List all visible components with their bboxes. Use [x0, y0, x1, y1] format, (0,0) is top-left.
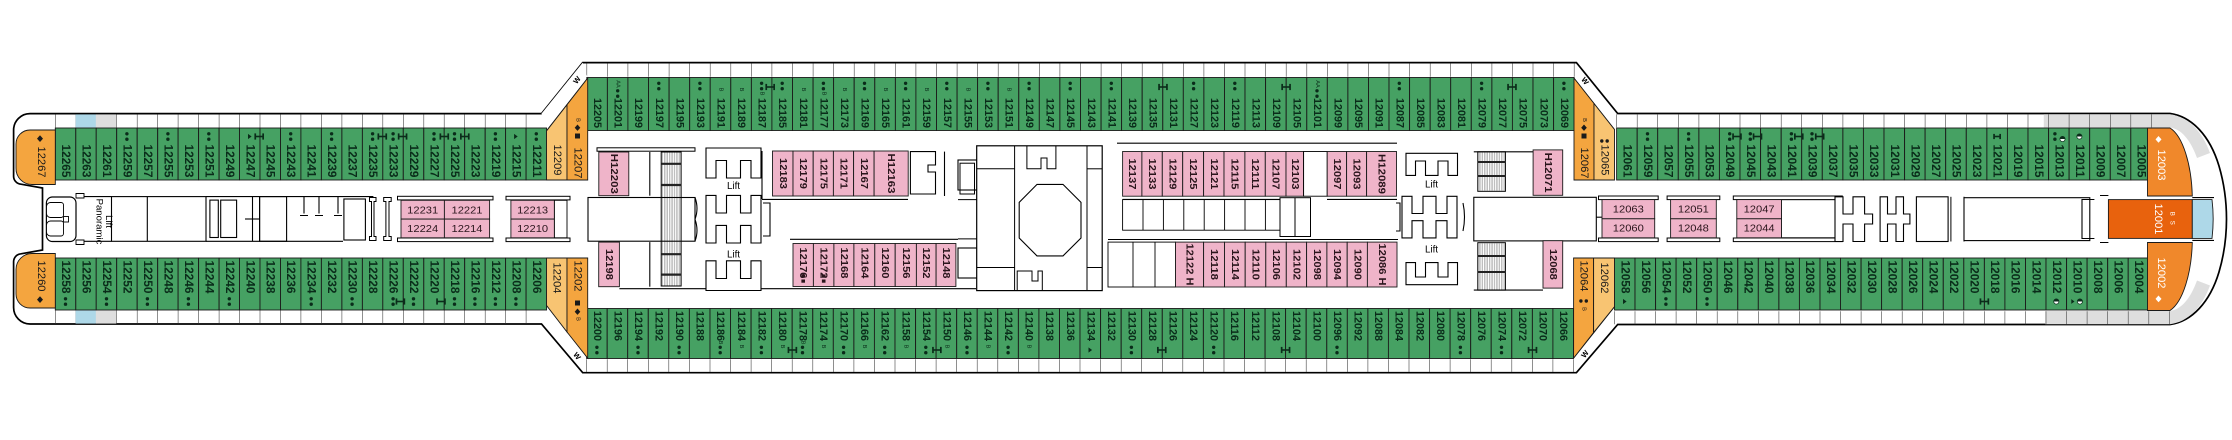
svg-text:B: B	[738, 88, 744, 92]
svg-text:12256: 12256	[80, 261, 93, 295]
svg-text:12134: 12134	[1084, 311, 1096, 342]
svg-text:12151: 12151	[1003, 98, 1015, 128]
svg-text:12261: 12261	[100, 145, 113, 179]
svg-text:12259: 12259	[120, 145, 133, 179]
svg-text:12216: 12216	[468, 261, 481, 295]
svg-text:12157: 12157	[941, 98, 953, 128]
svg-text:12077: 12077	[1496, 98, 1508, 128]
svg-text:12156: 12156	[900, 248, 912, 279]
svg-text:12064: 12064	[1578, 261, 1590, 292]
svg-text:12116: 12116	[1228, 311, 1240, 341]
svg-text:12069: 12069	[1558, 98, 1570, 128]
svg-text:12097: 12097	[1331, 159, 1343, 190]
svg-text:12249: 12249	[223, 145, 236, 179]
svg-text:B: B	[882, 88, 888, 92]
svg-text:12146: 12146	[961, 311, 973, 341]
svg-text:12232: 12232	[325, 261, 338, 294]
svg-text:12021: 12021	[1991, 145, 2004, 179]
svg-text:12193: 12193	[694, 98, 706, 128]
svg-text:12184: 12184	[735, 311, 747, 342]
svg-text:12022: 12022	[1947, 261, 1960, 294]
svg-text:12100: 12100	[1311, 311, 1323, 341]
svg-text:12031: 12031	[1888, 145, 1901, 179]
svg-text:12235: 12235	[366, 145, 379, 179]
svg-text:12099: 12099	[1332, 98, 1344, 128]
svg-text:12201: 12201	[612, 98, 624, 128]
svg-text:12169: 12169	[859, 98, 871, 128]
svg-text:12143: 12143	[1085, 98, 1097, 128]
svg-text:12112: 12112	[1249, 311, 1261, 341]
svg-text:12073: 12073	[1537, 98, 1549, 128]
svg-text:B: B	[717, 341, 723, 345]
svg-text:12111: 12111	[1249, 159, 1261, 190]
svg-text:12039: 12039	[1806, 145, 1819, 179]
svg-text:12088: 12088	[1372, 311, 1384, 341]
svg-text:12067: 12067	[1578, 148, 1590, 179]
svg-text:12042: 12042	[1742, 261, 1755, 294]
svg-text:12162: 12162	[879, 311, 891, 341]
svg-text:12079: 12079	[1476, 98, 1488, 128]
svg-text:B: B	[575, 317, 581, 321]
svg-text:12205: 12205	[591, 98, 603, 128]
svg-text:12187: 12187	[756, 98, 768, 128]
svg-text:12106: 12106	[1270, 249, 1282, 280]
svg-text:12192: 12192	[653, 311, 665, 341]
svg-text:12074: 12074	[1496, 311, 1508, 342]
svg-text:12171: 12171	[838, 158, 850, 189]
svg-text:12109: 12109	[1270, 98, 1282, 128]
svg-text:12211: 12211	[530, 145, 543, 179]
svg-text:12236: 12236	[284, 261, 297, 295]
svg-text:12212: 12212	[489, 260, 502, 293]
svg-text:12008: 12008	[2091, 261, 2104, 295]
svg-text:12222: 12222	[407, 261, 420, 294]
svg-text:12237: 12237	[346, 145, 359, 178]
svg-text:12059: 12059	[1641, 145, 1654, 179]
svg-text:12123: 12123	[1208, 98, 1220, 128]
svg-text:12175: 12175	[817, 158, 829, 189]
svg-text:12028: 12028	[1885, 261, 1898, 295]
svg-text:12231: 12231	[407, 204, 438, 216]
svg-text:12015: 12015	[2032, 145, 2045, 179]
svg-text:12083: 12083	[1435, 98, 1447, 128]
svg-text:12026: 12026	[1906, 261, 1919, 295]
svg-text:12219: 12219	[489, 144, 502, 178]
svg-text:12164: 12164	[858, 248, 870, 279]
svg-text:12265: 12265	[59, 145, 72, 179]
svg-text:B: B	[1006, 88, 1012, 92]
svg-text:12037: 12037	[1826, 145, 1839, 178]
svg-text:12025: 12025	[1950, 145, 1963, 179]
svg-text:12144: 12144	[982, 311, 994, 342]
svg-text:12016: 12016	[2009, 261, 2022, 295]
svg-text:12177: 12177	[817, 98, 829, 128]
svg-text:B: B	[820, 345, 826, 349]
svg-text:12179: 12179	[797, 158, 809, 189]
svg-text:12178: 12178	[797, 311, 809, 341]
svg-text:12174: 12174	[817, 311, 829, 342]
svg-text:12047: 12047	[1744, 204, 1775, 216]
svg-text:12195: 12195	[673, 98, 685, 128]
svg-text:12141: 12141	[1105, 98, 1117, 128]
svg-text:12131: 12131	[1167, 98, 1179, 128]
svg-text:12238: 12238	[264, 261, 277, 295]
svg-text:12239: 12239	[325, 145, 338, 179]
svg-text:12132: 12132	[1105, 311, 1117, 341]
svg-text:H12089: H12089	[1376, 154, 1388, 194]
svg-text:12104: 12104	[1290, 311, 1302, 342]
svg-text:12009: 12009	[2094, 145, 2107, 179]
svg-text:12120: 12120	[1208, 311, 1220, 341]
svg-text:12214: 12214	[452, 223, 483, 235]
svg-text:12215: 12215	[509, 145, 522, 179]
svg-text:12036: 12036	[1803, 261, 1816, 295]
svg-text:Panoramic: Panoramic	[94, 199, 105, 245]
svg-text:12055: 12055	[1682, 145, 1695, 179]
svg-text:12003: 12003	[2155, 150, 2167, 181]
svg-text:12019: 12019	[2011, 145, 2024, 179]
svg-text:12255: 12255	[161, 145, 174, 179]
svg-text:12044: 12044	[1744, 223, 1775, 235]
svg-text:12254: 12254	[100, 261, 113, 295]
svg-text:B: B	[738, 345, 744, 349]
svg-text:12046: 12046	[1721, 261, 1734, 295]
svg-text:12107: 12107	[1270, 159, 1282, 190]
svg-text:Lift: Lift	[1425, 245, 1438, 256]
svg-text:12136: 12136	[1064, 311, 1076, 341]
svg-text:12234: 12234	[305, 261, 318, 295]
svg-text:B: B	[964, 88, 970, 92]
svg-text:H12071: H12071	[1542, 153, 1554, 193]
svg-text:12250: 12250	[141, 261, 154, 294]
svg-text:12122 H: 12122 H	[1184, 244, 1196, 286]
svg-text:12148: 12148	[940, 248, 952, 279]
svg-text:12244: 12244	[202, 261, 215, 295]
svg-text:12230: 12230	[346, 261, 359, 294]
svg-text:12160: 12160	[879, 248, 891, 279]
svg-text:12056: 12056	[1639, 261, 1652, 295]
svg-text:12180: 12180	[776, 311, 788, 341]
svg-text:12095: 12095	[1352, 98, 1364, 128]
svg-text:12137: 12137	[1126, 159, 1138, 190]
svg-text:12012: 12012	[2050, 261, 2063, 294]
svg-text:B: B	[800, 88, 806, 92]
svg-text:12172: 12172	[818, 248, 830, 279]
svg-text:12167: 12167	[858, 158, 870, 189]
svg-text:12040: 12040	[1762, 261, 1775, 294]
svg-text:12006: 12006	[2112, 261, 2125, 295]
svg-text:12159: 12159	[920, 98, 932, 128]
svg-text:12057: 12057	[1662, 145, 1675, 178]
svg-text:12253: 12253	[182, 145, 195, 179]
svg-text:12152: 12152	[920, 248, 932, 279]
svg-text:12125: 12125	[1187, 159, 1199, 190]
svg-text:12126: 12126	[1167, 311, 1179, 341]
svg-text:12128: 12128	[1146, 311, 1158, 341]
svg-text:12226: 12226	[387, 261, 400, 295]
svg-text:12247: 12247	[243, 145, 256, 178]
svg-text:12223: 12223	[468, 145, 481, 179]
svg-text:12011: 12011	[2073, 145, 2086, 179]
svg-text:12263: 12263	[80, 145, 93, 179]
svg-text:H12163: H12163	[885, 154, 897, 194]
svg-text:12168: 12168	[838, 248, 850, 279]
svg-text:12196: 12196	[611, 311, 623, 341]
svg-text:Lift: Lift	[103, 215, 114, 228]
svg-text:12246: 12246	[182, 261, 195, 295]
svg-text:12030: 12030	[1865, 261, 1878, 294]
svg-text:12121: 12121	[1208, 159, 1220, 190]
svg-text:12081: 12081	[1455, 98, 1467, 128]
svg-text:12002: 12002	[2155, 258, 2167, 289]
svg-text:B: B	[718, 88, 724, 92]
svg-text:12041: 12041	[1785, 145, 1798, 179]
svg-text:12242: 12242	[223, 261, 236, 294]
svg-text:12086 H: 12086 H	[1376, 244, 1388, 286]
svg-text:H12203: H12203	[608, 154, 620, 194]
svg-text:12243: 12243	[284, 145, 297, 179]
svg-text:B: B	[1581, 118, 1587, 122]
svg-text:12065: 12065	[1599, 145, 1611, 176]
svg-text:12199: 12199	[632, 98, 644, 128]
svg-text:12204: 12204	[551, 263, 563, 294]
svg-text:12190: 12190	[673, 311, 685, 341]
svg-text:12045: 12045	[1744, 145, 1757, 179]
svg-text:12007: 12007	[2114, 145, 2127, 178]
svg-text:12240: 12240	[243, 261, 256, 294]
svg-text:12033: 12033	[1867, 145, 1880, 179]
svg-text:12092: 12092	[1352, 311, 1364, 341]
svg-text:12060: 12060	[1613, 223, 1644, 235]
svg-text:B: B	[985, 345, 991, 349]
svg-text:12061: 12061	[1620, 145, 1633, 179]
svg-text:12096: 12096	[1331, 311, 1343, 341]
svg-text:B: B	[923, 88, 929, 92]
svg-text:B: B	[841, 88, 847, 92]
svg-text:12103: 12103	[1289, 159, 1301, 190]
svg-text:12188: 12188	[694, 311, 706, 341]
svg-text:Lift: Lift	[1425, 180, 1438, 191]
svg-text:12200: 12200	[591, 311, 603, 341]
svg-text:12114: 12114	[1229, 249, 1241, 280]
svg-text:12093: 12093	[1351, 159, 1363, 190]
svg-text:12020: 12020	[1968, 261, 1981, 294]
svg-text:12251: 12251	[202, 145, 215, 179]
svg-text:12241: 12241	[305, 145, 318, 179]
svg-text:12183: 12183	[777, 158, 789, 189]
svg-text:12024: 12024	[1927, 261, 1940, 295]
svg-text:12158: 12158	[899, 311, 911, 341]
svg-text:12161: 12161	[900, 98, 912, 128]
svg-text:12166: 12166	[858, 311, 870, 341]
svg-text:12198: 12198	[603, 249, 615, 280]
svg-text:12210: 12210	[517, 223, 548, 235]
svg-text:12173: 12173	[838, 98, 850, 128]
svg-text:12252: 12252	[120, 261, 133, 294]
svg-text:12197: 12197	[653, 98, 665, 128]
svg-text:12209: 12209	[551, 145, 563, 176]
svg-text:12130: 12130	[1125, 311, 1137, 341]
svg-text:12154: 12154	[920, 311, 932, 342]
svg-text:12050: 12050	[1701, 261, 1714, 294]
svg-text:12063: 12063	[1613, 204, 1644, 216]
svg-text:12110: 12110	[1250, 249, 1262, 280]
svg-text:12218: 12218	[448, 261, 461, 295]
svg-text:12133: 12133	[1146, 159, 1158, 190]
svg-text:12149: 12149	[1023, 98, 1035, 128]
svg-text:12150: 12150	[940, 311, 952, 341]
svg-text:12070: 12070	[1537, 311, 1549, 341]
svg-text:12194: 12194	[632, 311, 644, 342]
svg-text:12138: 12138	[1043, 311, 1055, 341]
svg-text:12053: 12053	[1703, 145, 1716, 179]
svg-text:12155: 12155	[961, 98, 973, 128]
svg-text:12220: 12220	[428, 261, 441, 294]
svg-text:12213: 12213	[517, 204, 548, 216]
svg-text:12105: 12105	[1291, 98, 1303, 128]
svg-text:12038: 12038	[1783, 261, 1796, 295]
svg-text:12094: 12094	[1331, 249, 1343, 280]
svg-text:12206: 12206	[530, 261, 543, 295]
svg-text:12224: 12224	[407, 223, 438, 235]
svg-text:12142: 12142	[1002, 311, 1014, 341]
svg-text:12098: 12098	[1311, 249, 1323, 280]
svg-text:12014: 12014	[2029, 261, 2042, 295]
svg-text:12153: 12153	[982, 98, 994, 128]
svg-text:12052: 12052	[1680, 261, 1693, 294]
svg-text:B: B	[759, 92, 765, 96]
svg-text:12051: 12051	[1678, 204, 1709, 216]
svg-text:12062: 12062	[1598, 263, 1610, 294]
svg-text:12027: 12027	[1929, 145, 1942, 178]
svg-text:12248: 12248	[161, 261, 174, 295]
svg-text:12170: 12170	[838, 311, 850, 341]
svg-text:B: B	[800, 341, 806, 345]
svg-text:12005: 12005	[2135, 145, 2148, 179]
svg-text:12085: 12085	[1414, 98, 1426, 128]
svg-text:12267: 12267	[35, 147, 47, 178]
svg-text:AA: AA	[1314, 80, 1320, 88]
svg-text:12118: 12118	[1208, 249, 1220, 280]
svg-text:B: B	[575, 118, 581, 122]
svg-text:12018: 12018	[1988, 261, 2001, 295]
svg-text:12043: 12043	[1764, 145, 1777, 179]
svg-text:12185: 12185	[776, 98, 788, 128]
svg-text:12202: 12202	[572, 261, 584, 292]
svg-text:12182: 12182	[755, 311, 767, 341]
svg-text:12090: 12090	[1351, 249, 1363, 280]
svg-text:12225: 12225	[448, 145, 461, 179]
svg-text:12080: 12080	[1434, 311, 1446, 341]
svg-text:12048: 12048	[1678, 223, 1709, 235]
svg-text:12181: 12181	[797, 98, 809, 128]
svg-text:12135: 12135	[1147, 98, 1159, 128]
svg-text:12013: 12013	[2052, 145, 2065, 179]
svg-text:B S: B S	[2169, 212, 2176, 226]
svg-text:12072: 12072	[1516, 311, 1528, 341]
svg-text:B: B	[1026, 345, 1032, 349]
svg-text:12054: 12054	[1659, 261, 1672, 295]
svg-text:12176: 12176	[797, 248, 809, 279]
svg-text:12102: 12102	[1291, 249, 1303, 280]
svg-text:12147: 12147	[1044, 98, 1056, 128]
svg-text:12068: 12068	[1547, 249, 1559, 280]
svg-text:12186: 12186	[714, 311, 726, 341]
svg-text:Lift: Lift	[727, 181, 740, 192]
svg-text:12129: 12129	[1167, 159, 1179, 190]
svg-text:12140: 12140	[1023, 311, 1035, 341]
svg-text:B: B	[902, 345, 908, 349]
svg-text:12078: 12078	[1454, 311, 1466, 341]
svg-text:B: B	[820, 92, 826, 96]
svg-text:12034: 12034	[1824, 261, 1837, 295]
svg-text:12032: 12032	[1844, 261, 1857, 294]
svg-text:12001: 12001	[2152, 204, 2164, 235]
svg-text:B: B	[779, 345, 785, 349]
svg-text:12082: 12082	[1413, 311, 1425, 341]
svg-text:12049: 12049	[1723, 145, 1736, 179]
svg-text:12091: 12091	[1373, 98, 1385, 128]
svg-text:12113: 12113	[1249, 98, 1261, 128]
svg-text:B: B	[943, 345, 949, 349]
svg-text:12127: 12127	[1188, 98, 1200, 128]
svg-text:12207: 12207	[572, 148, 584, 179]
svg-text:12229: 12229	[407, 145, 420, 179]
svg-text:12075: 12075	[1517, 98, 1529, 128]
svg-text:12076: 12076	[1475, 311, 1487, 341]
svg-text:12035: 12035	[1847, 145, 1860, 179]
svg-text:B: B	[861, 345, 867, 349]
svg-text:12221: 12221	[452, 204, 483, 216]
svg-text:AA: AA	[615, 80, 621, 88]
svg-text:12189: 12189	[735, 98, 747, 128]
svg-text:12245: 12245	[264, 145, 277, 179]
svg-text:12084: 12084	[1393, 311, 1405, 342]
svg-text:12233: 12233	[387, 145, 400, 179]
svg-text:Lift: Lift	[727, 250, 740, 261]
svg-text:12165: 12165	[879, 98, 891, 128]
svg-text:12227: 12227	[428, 145, 441, 178]
svg-text:12257: 12257	[141, 145, 154, 178]
svg-text:12004: 12004	[2132, 261, 2145, 295]
svg-text:12108: 12108	[1269, 311, 1281, 341]
svg-text:12228: 12228	[366, 261, 379, 295]
svg-text:12119: 12119	[1229, 98, 1241, 128]
svg-text:12087: 12087	[1393, 98, 1405, 128]
svg-text:12124: 12124	[1187, 311, 1199, 342]
svg-text:12258: 12258	[59, 261, 72, 295]
svg-text:12023: 12023	[1970, 145, 1983, 179]
svg-text:12066: 12066	[1557, 311, 1569, 341]
svg-text:12058: 12058	[1618, 261, 1631, 295]
svg-text:12101: 12101	[1311, 98, 1323, 128]
svg-text:12139: 12139	[1126, 98, 1138, 128]
svg-text:12115: 12115	[1229, 159, 1241, 190]
svg-text:12029: 12029	[1908, 145, 1921, 179]
svg-text:B: B	[1581, 307, 1587, 311]
svg-text:12208: 12208	[509, 261, 522, 295]
svg-text:12260: 12260	[35, 261, 47, 292]
svg-text:12145: 12145	[1064, 98, 1076, 128]
svg-text:12010: 12010	[2070, 261, 2083, 294]
svg-text:12191: 12191	[715, 98, 727, 128]
